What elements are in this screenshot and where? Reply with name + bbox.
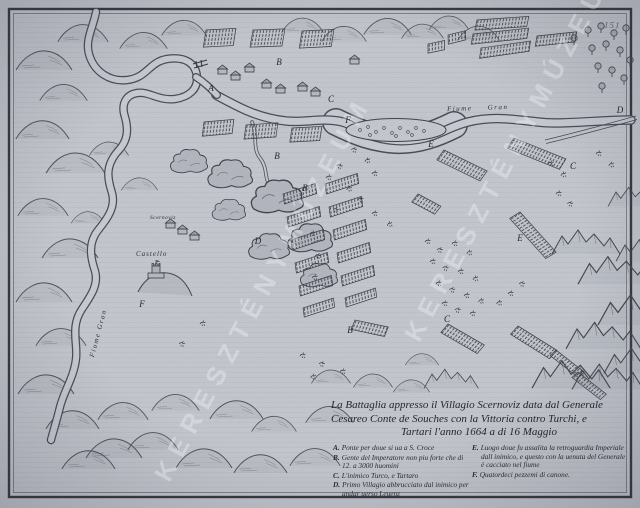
scanned-map-sheet: 151 KERESZTÉNYMÚZEUM KERESZTÉNYMÚZEUM Fi… xyxy=(0,0,640,508)
engraved-map-canvas xyxy=(0,0,640,508)
edge-vignette xyxy=(0,0,640,508)
